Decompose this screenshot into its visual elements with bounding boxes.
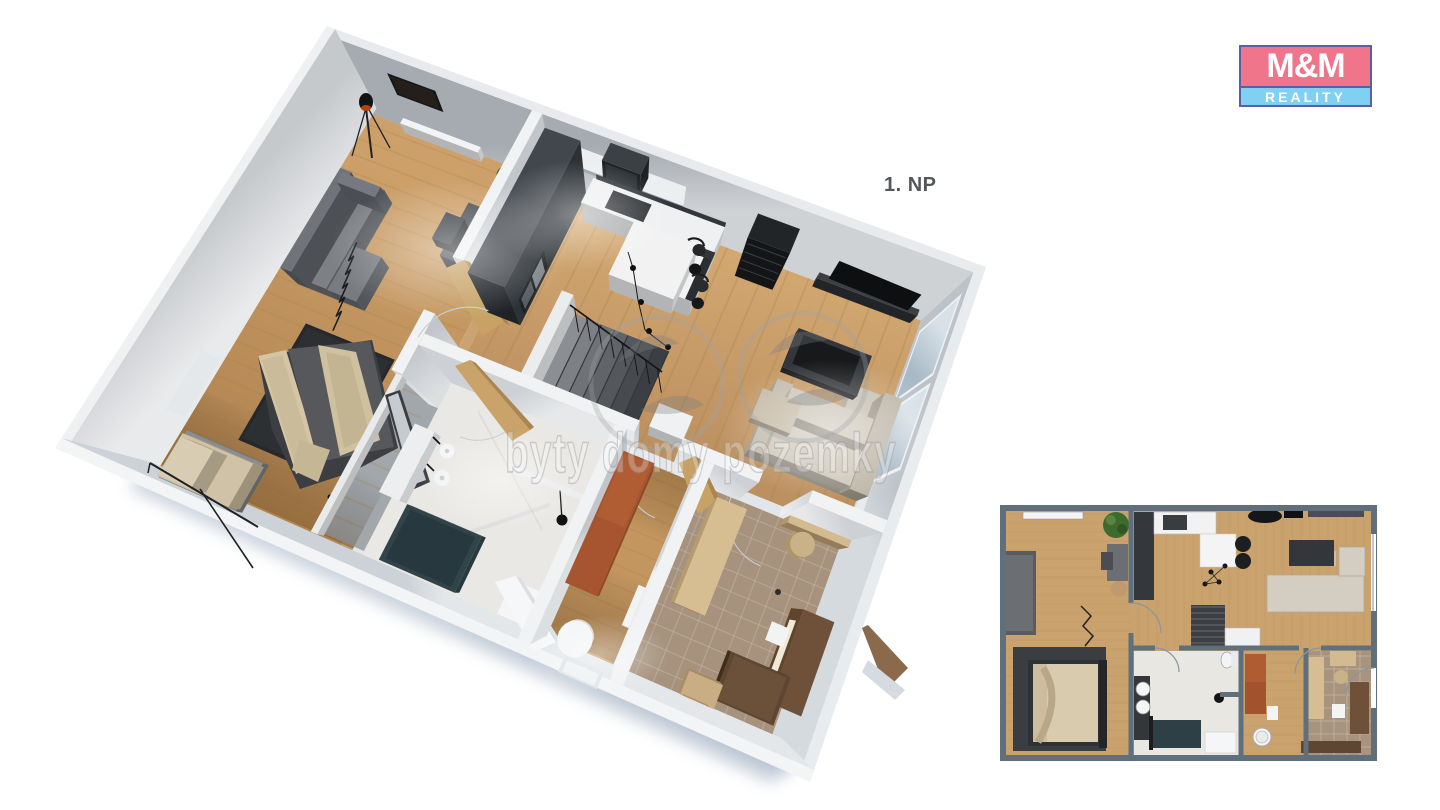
svg-text:byty domy pozemky: byty domy pozemky	[505, 421, 897, 484]
